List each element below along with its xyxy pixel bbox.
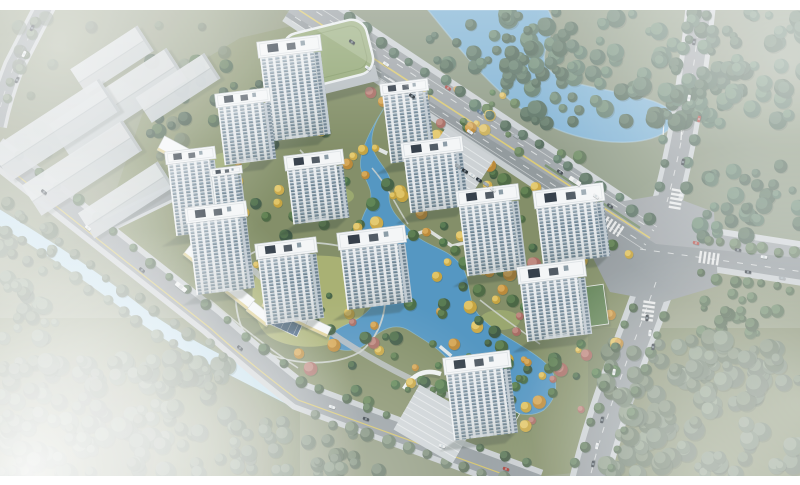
- fog-layer: [0, 0, 800, 485]
- top-margin: [0, 0, 800, 10]
- aerial-rendering: [0, 0, 800, 485]
- rendering-canvas: [0, 0, 800, 485]
- global-veil: [0, 0, 800, 485]
- bottom-margin: [0, 476, 800, 485]
